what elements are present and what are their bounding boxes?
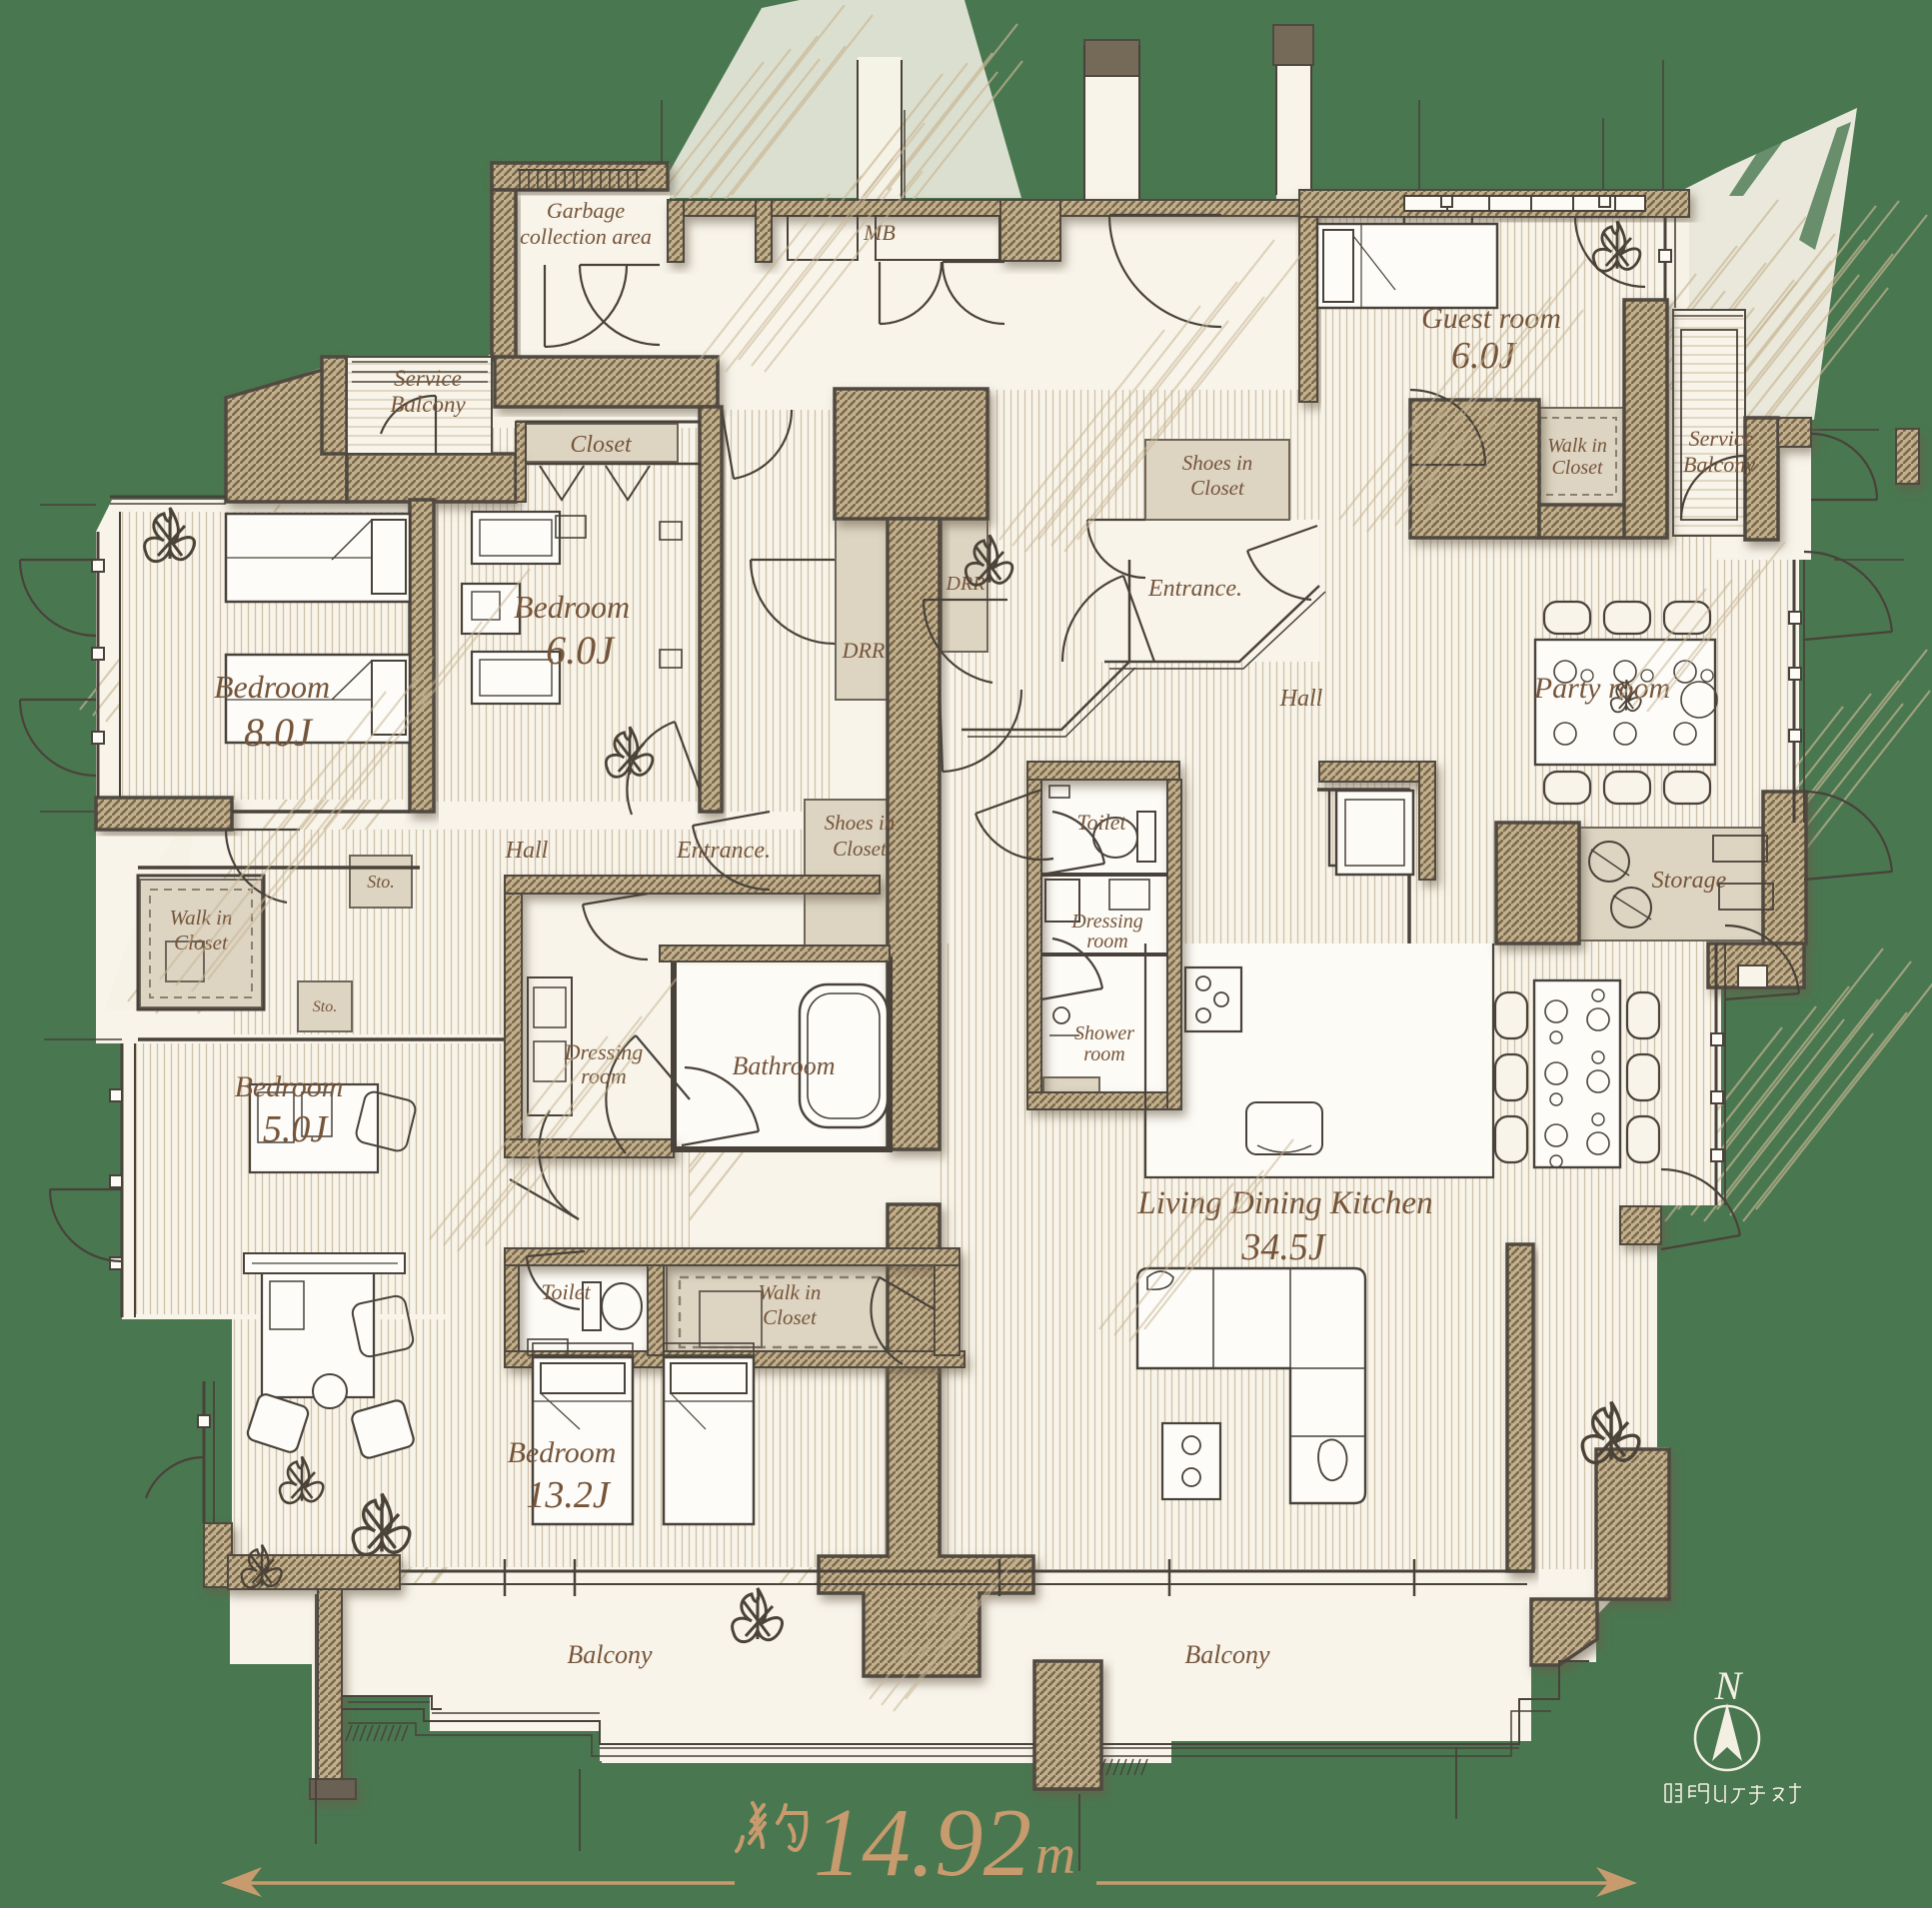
svg-text:room: room — [1083, 1043, 1124, 1065]
svg-text:Hall: Hall — [1279, 686, 1323, 712]
svg-text:Hall: Hall — [505, 838, 549, 864]
svg-text:Bathroom: Bathroom — [732, 1051, 835, 1080]
svg-text:6.0J: 6.0J — [1451, 335, 1518, 377]
svg-text:Sto.: Sto. — [367, 872, 395, 892]
svg-text:m: m — [1035, 1824, 1075, 1886]
svg-text:Walk in: Walk in — [759, 1280, 822, 1304]
svg-text:collection area: collection area — [520, 224, 652, 249]
svg-text:Toilet: Toilet — [541, 1279, 591, 1304]
svg-text:Entrance.: Entrance. — [676, 838, 771, 864]
svg-text:Bedroom: Bedroom — [214, 669, 330, 705]
svg-text:room: room — [1086, 931, 1127, 953]
svg-text:Party room: Party room — [1533, 672, 1670, 705]
svg-text:Closet: Closet — [833, 837, 888, 861]
svg-text:6.0J: 6.0J — [546, 628, 616, 673]
svg-text:Dressing: Dressing — [1070, 911, 1142, 933]
svg-text:Bedroom: Bedroom — [235, 1070, 344, 1103]
svg-text:Toilet: Toilet — [1076, 810, 1126, 835]
svg-text:Service: Service — [394, 366, 462, 391]
svg-text:Storage: Storage — [1652, 868, 1727, 894]
svg-text:5.0J: 5.0J — [263, 1108, 330, 1150]
svg-text:34.5J: 34.5J — [1240, 1226, 1327, 1268]
svg-text:Living Dining Kitchen: Living Dining Kitchen — [1136, 1185, 1432, 1221]
svg-text:Bedroom: Bedroom — [514, 589, 630, 625]
svg-text:13.2J: 13.2J — [526, 1474, 612, 1516]
svg-text:Balcony: Balcony — [1184, 1640, 1270, 1669]
svg-text:N: N — [1714, 1663, 1744, 1708]
svg-text:8.0J: 8.0J — [244, 710, 314, 755]
svg-text:Balcony: Balcony — [567, 1640, 653, 1669]
svg-text:Shoes in: Shoes in — [825, 811, 896, 835]
svg-text:Entrance.: Entrance. — [1147, 576, 1242, 602]
svg-text:Closet: Closet — [763, 1305, 818, 1329]
svg-text:DRR: DRR — [842, 638, 886, 663]
svg-text:Closet: Closet — [1190, 476, 1245, 500]
svg-text:Closet: Closet — [570, 432, 633, 458]
svg-text:Garbage: Garbage — [547, 198, 625, 223]
svg-text:Shower: Shower — [1074, 1022, 1134, 1044]
svg-text:Shoes in: Shoes in — [1182, 451, 1253, 475]
svg-text:Sto.: Sto. — [313, 998, 337, 1015]
svg-text:Walk in: Walk in — [1547, 435, 1607, 457]
svg-text:Balcony: Balcony — [390, 392, 466, 417]
svg-text:14.92: 14.92 — [814, 1789, 1031, 1896]
svg-text:Closet: Closet — [1551, 457, 1603, 479]
svg-text:Service: Service — [1689, 426, 1754, 451]
svg-text:Bedroom: Bedroom — [508, 1436, 617, 1469]
svg-text:Balcony: Balcony — [1683, 452, 1755, 477]
